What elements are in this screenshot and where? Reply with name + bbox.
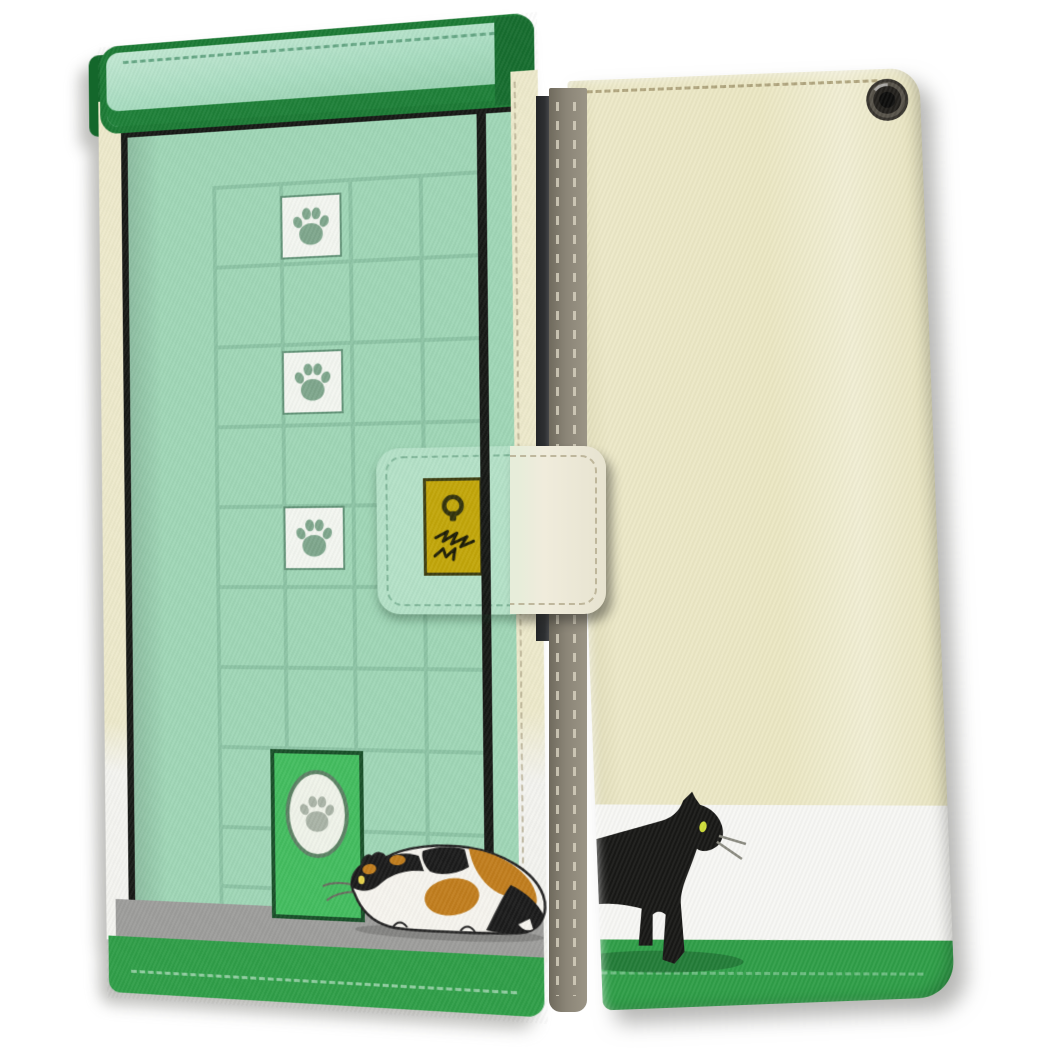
front-cover <box>98 12 548 1024</box>
back-cover <box>567 68 954 1011</box>
paw-print-tile <box>283 506 345 570</box>
black-cat <box>581 791 748 978</box>
paw-icon <box>291 515 337 561</box>
door-frame-over-clasp <box>480 446 491 614</box>
paw-print-tile <box>282 349 344 415</box>
camera-eyelet-icon <box>863 76 911 124</box>
paw-icon <box>295 791 339 836</box>
clasp-end-stitch <box>510 455 597 605</box>
keyhole-plate <box>423 477 484 575</box>
keyhole-icon <box>426 480 480 572</box>
paw-icon <box>288 202 334 250</box>
bottom-band-stitch <box>131 970 517 995</box>
calico-cat <box>340 829 554 946</box>
scratch-mark-icon <box>436 531 474 547</box>
paw-print-tile <box>280 192 342 259</box>
back-print-group <box>567 68 954 1011</box>
clasp-strap-end <box>510 446 606 614</box>
product-photo <box>0 0 1060 1060</box>
paw-icon <box>290 358 336 405</box>
clasp-strap-front <box>376 446 516 615</box>
